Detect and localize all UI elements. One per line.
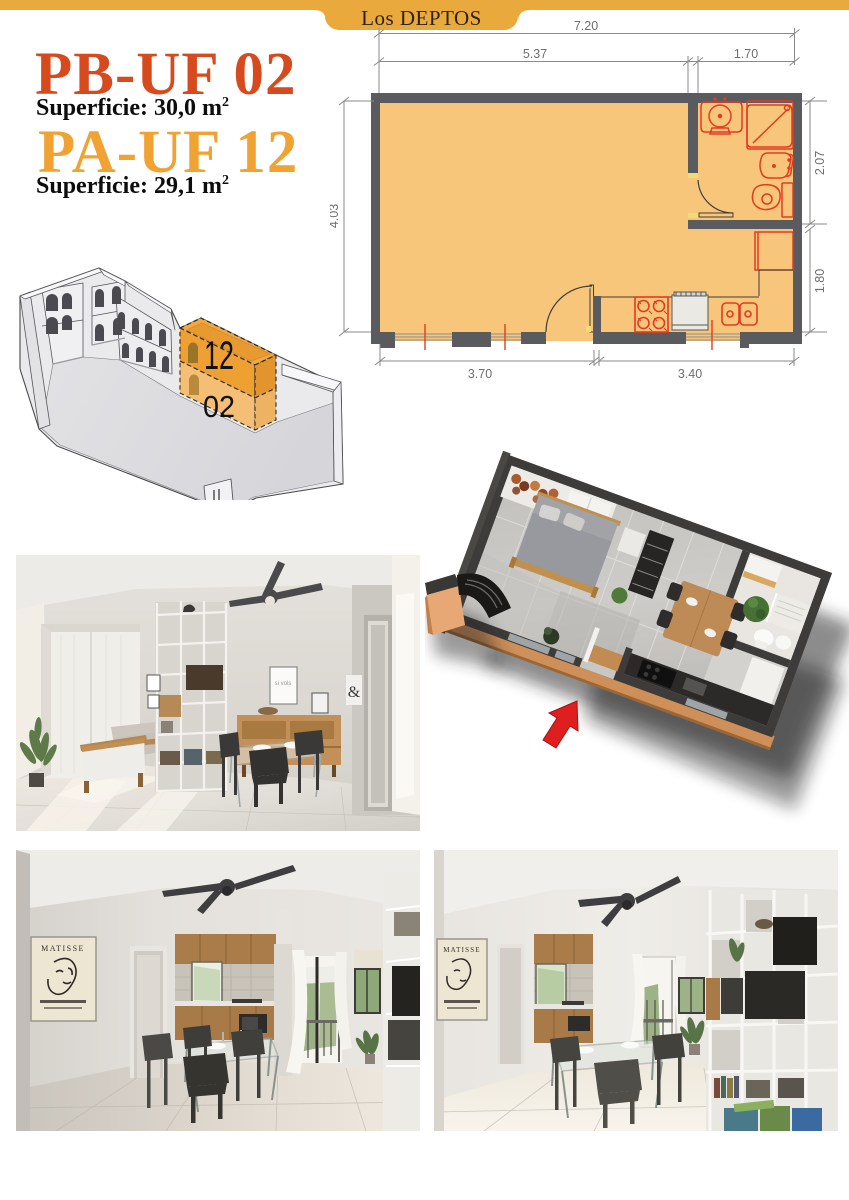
svg-text:02: 02 (203, 389, 235, 424)
svg-text:si vols: si vols (275, 681, 292, 687)
svg-text:2.07: 2.07 (813, 151, 827, 175)
svg-text:5.37: 5.37 (523, 47, 547, 61)
svg-text:1.80: 1.80 (813, 269, 827, 293)
svg-text:3.70: 3.70 (468, 367, 492, 381)
svg-text:4.03: 4.03 (330, 204, 341, 228)
svg-text:1.70: 1.70 (734, 47, 758, 61)
svg-text:MATISSE: MATISSE (41, 944, 85, 953)
svg-text:3.40: 3.40 (678, 367, 702, 381)
svg-text:&: & (348, 684, 361, 701)
svg-text:7.20: 7.20 (574, 20, 598, 33)
svg-text:12: 12 (204, 334, 234, 378)
svg-text:MATISSE: MATISSE (443, 946, 481, 954)
